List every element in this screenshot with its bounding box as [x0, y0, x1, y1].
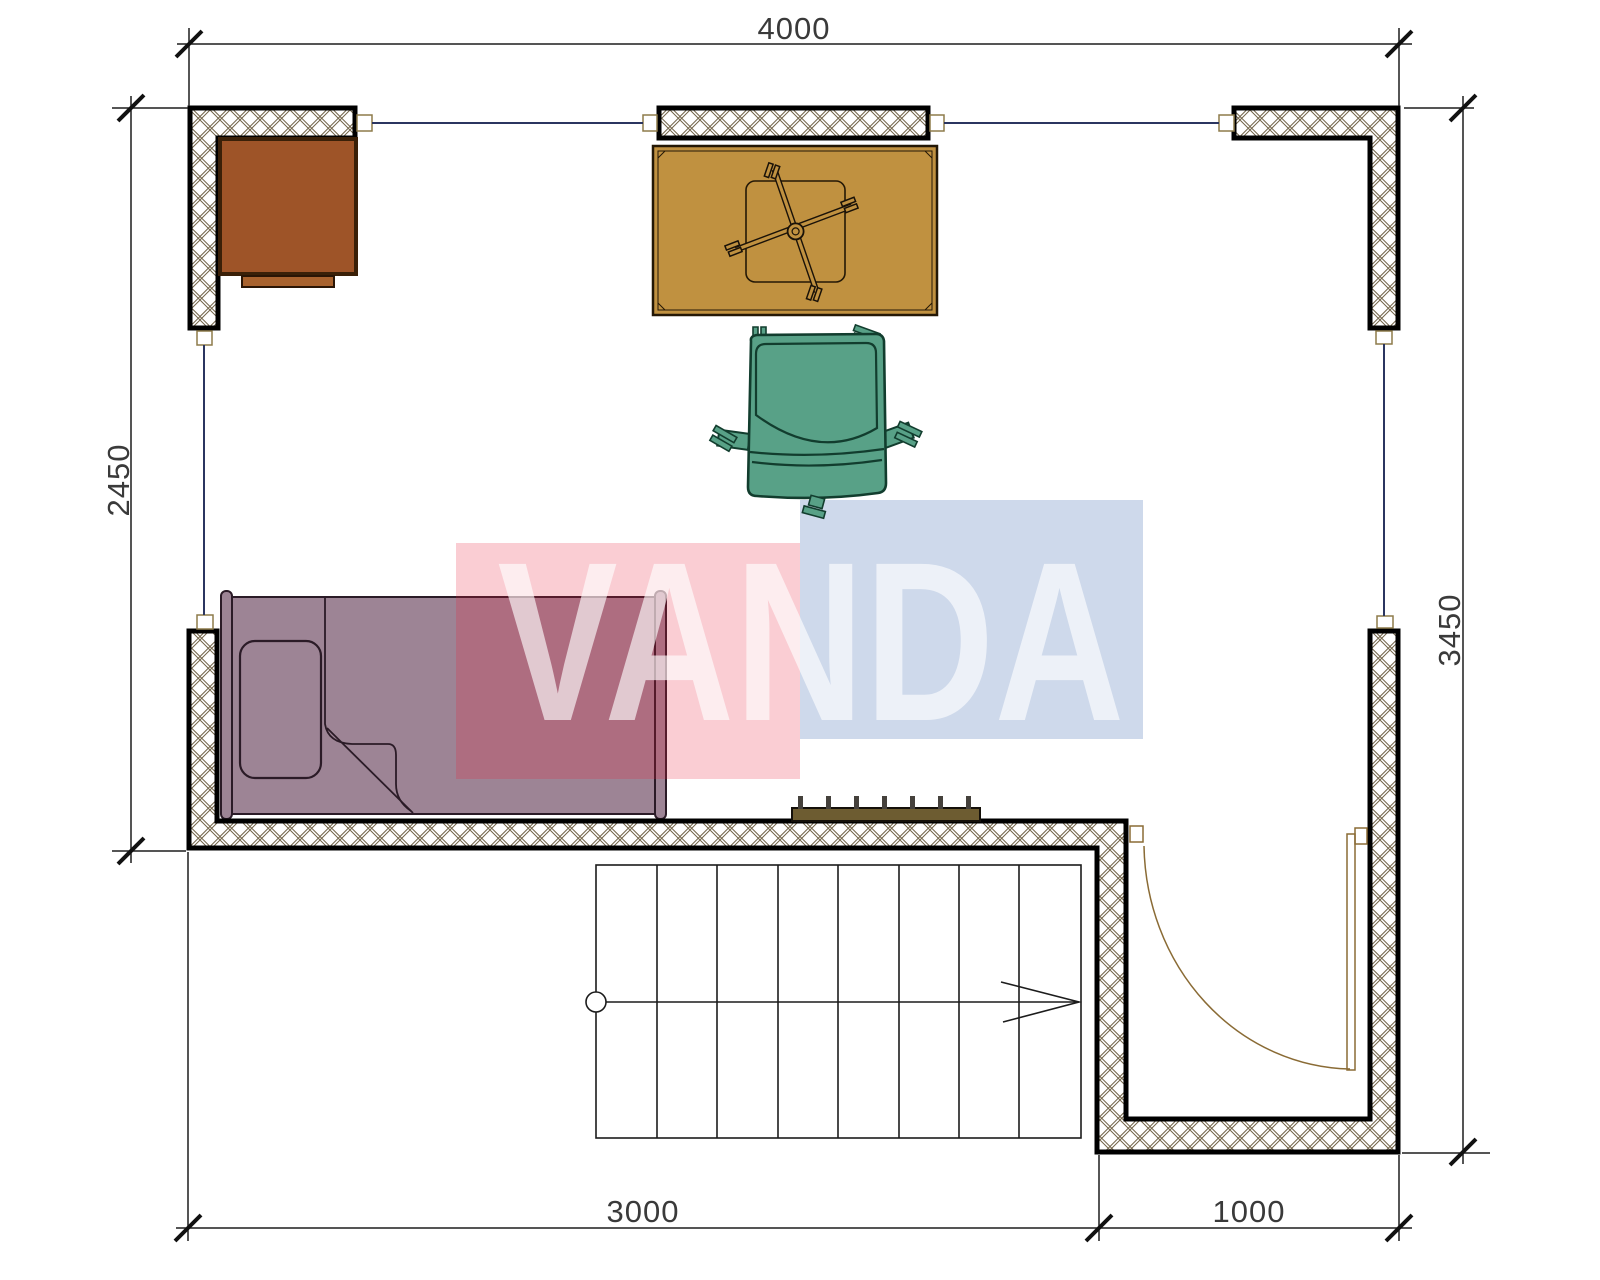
- svg-text:2450: 2450: [101, 444, 136, 517]
- svg-text:1000: 1000: [1213, 1194, 1286, 1229]
- svg-text:3450: 3450: [1432, 594, 1467, 667]
- svg-text:VANDA: VANDA: [498, 516, 1125, 769]
- svg-text:4000: 4000: [758, 11, 831, 46]
- svg-text:3000: 3000: [607, 1194, 680, 1229]
